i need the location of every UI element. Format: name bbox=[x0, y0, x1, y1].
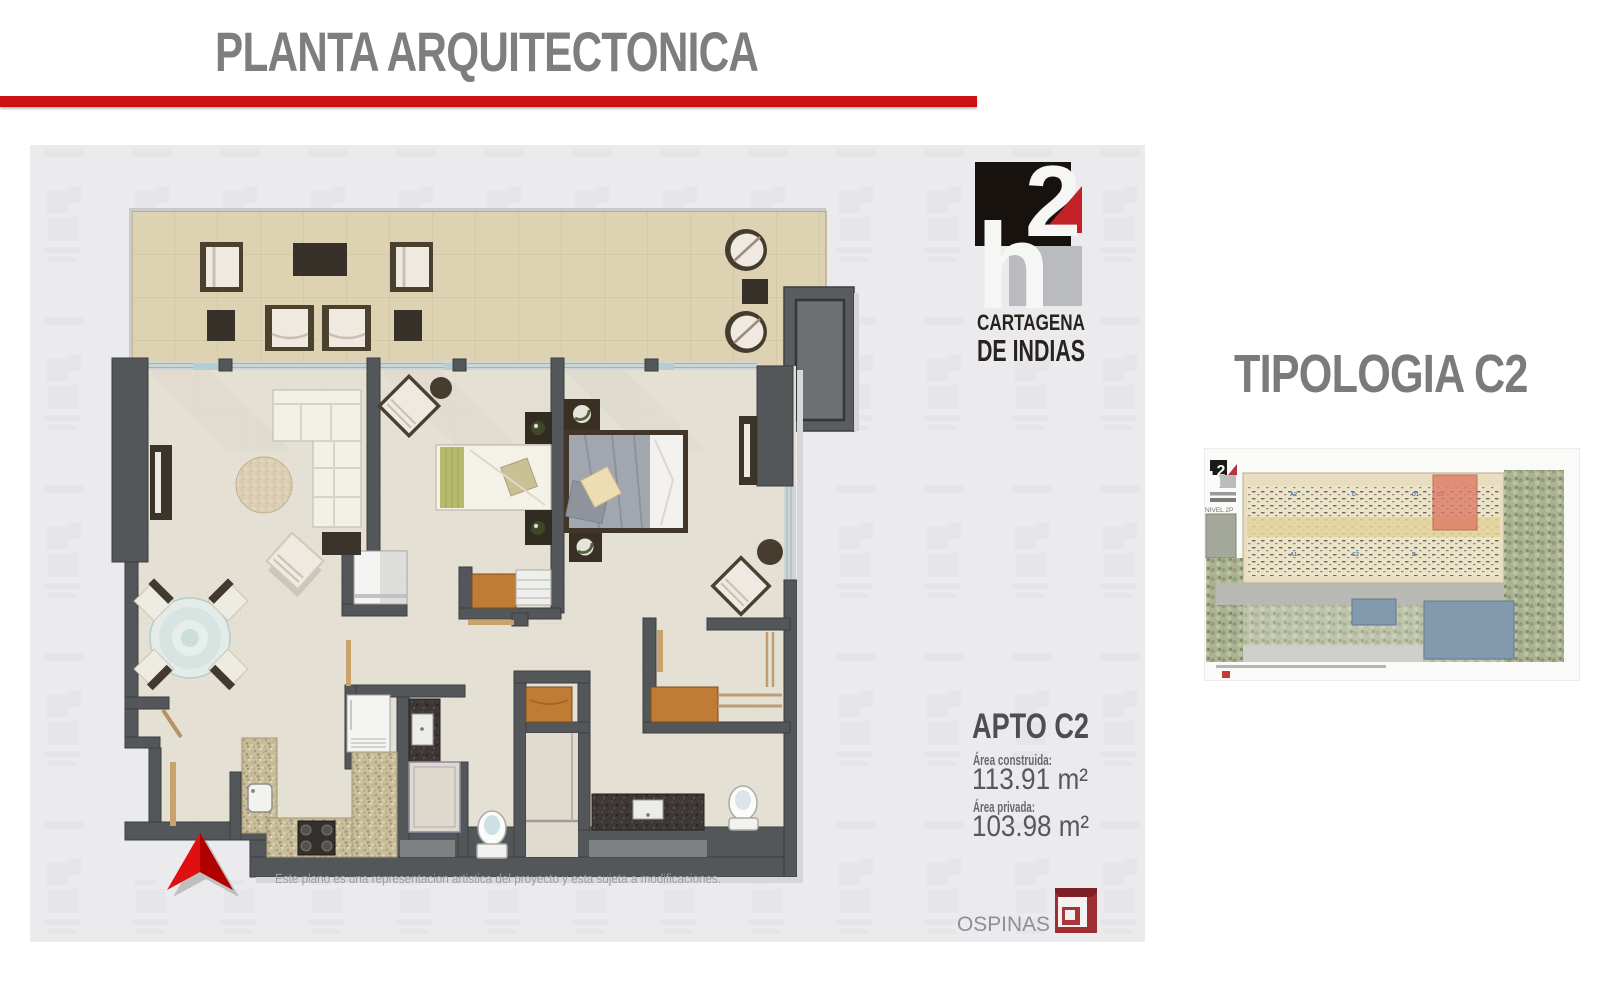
svg-text:h: h bbox=[1208, 467, 1221, 492]
svg-text:DE INDIAS: DE INDIAS bbox=[977, 333, 1085, 368]
svg-text:B: B bbox=[1412, 552, 1416, 558]
svg-text:OSPINAS: OSPINAS bbox=[957, 913, 1050, 936]
svg-text:113.91 m²: 113.91 m² bbox=[972, 763, 1088, 796]
svg-text:2: 2 bbox=[1025, 146, 1081, 258]
svg-text:A1: A1 bbox=[1290, 552, 1297, 558]
svg-text:APTO C2: APTO C2 bbox=[972, 707, 1089, 746]
svg-text:C2: C2 bbox=[1352, 552, 1359, 558]
svg-text:D: D bbox=[1352, 492, 1356, 498]
svg-text:103.98 m²: 103.98 m² bbox=[972, 810, 1089, 843]
svg-text:Este plano es una representaci: Este plano es una representacion artisti… bbox=[275, 872, 721, 886]
svg-text:NIVEL 2P: NIVEL 2P bbox=[1205, 507, 1233, 514]
svg-text:D1: D1 bbox=[1412, 492, 1419, 498]
svg-text:A2: A2 bbox=[1290, 492, 1297, 498]
svg-text:CARTAGENA: CARTAGENA bbox=[977, 310, 1085, 335]
